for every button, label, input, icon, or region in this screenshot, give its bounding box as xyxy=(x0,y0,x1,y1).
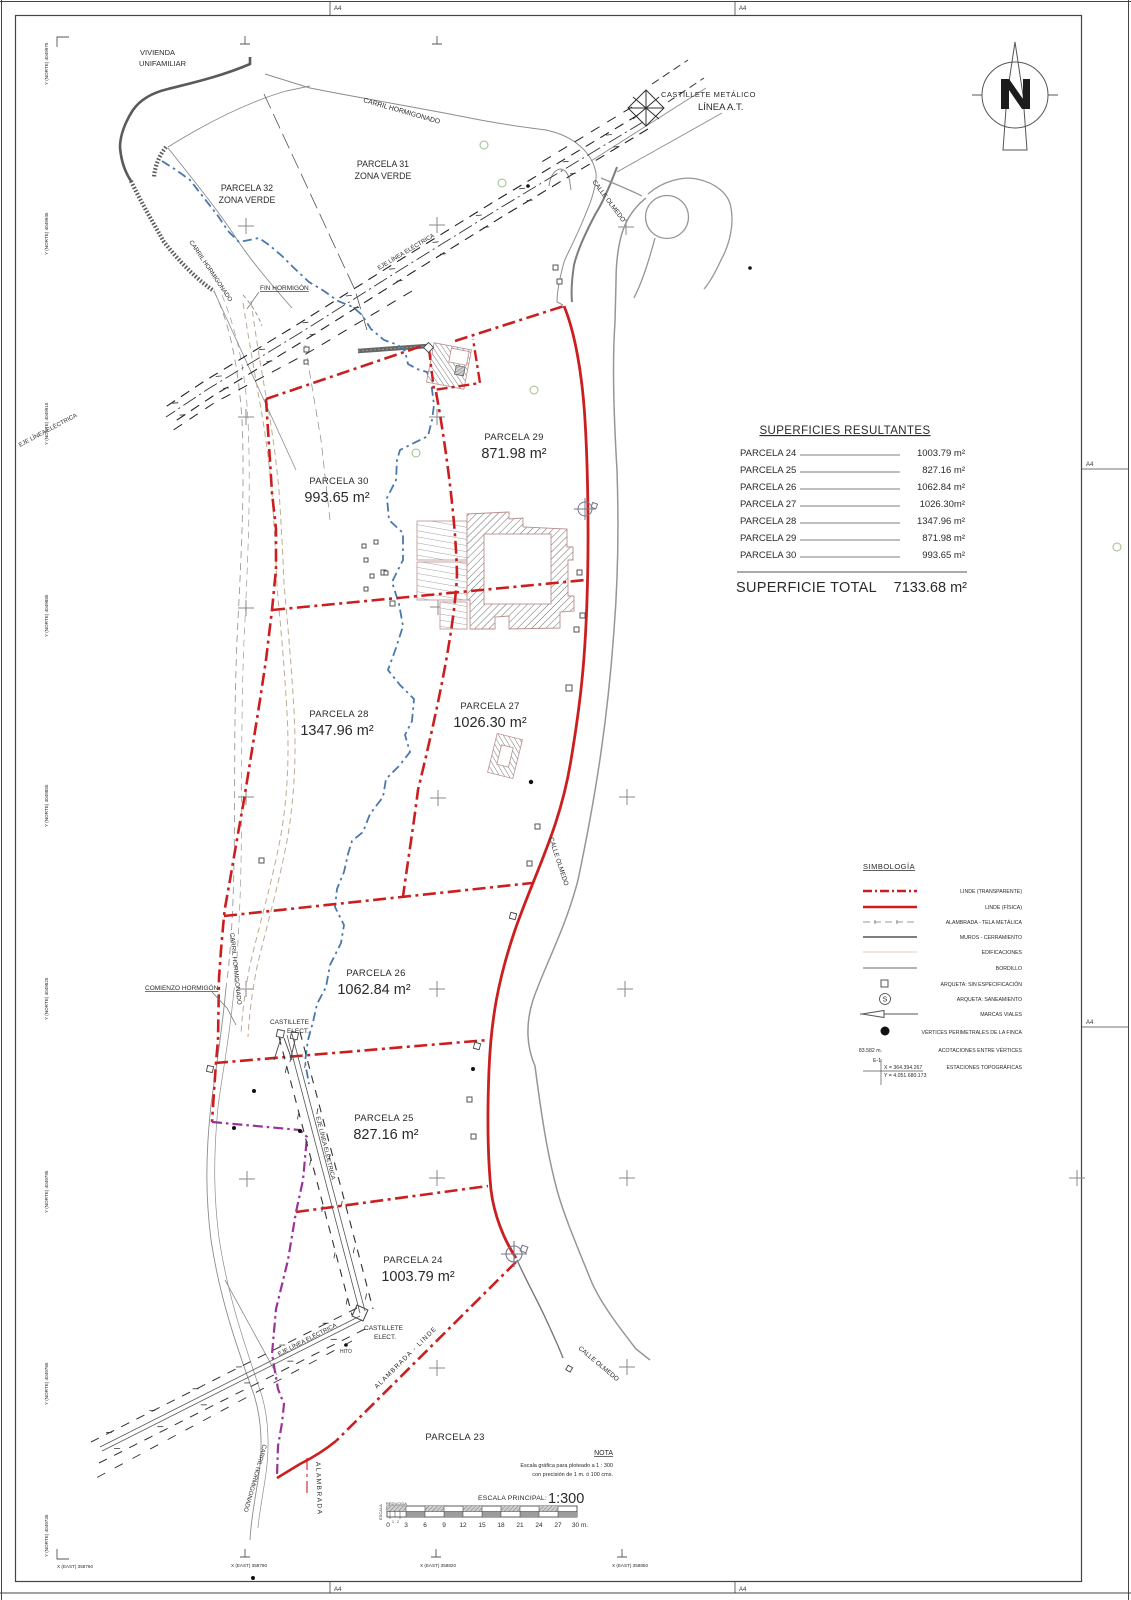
svg-text:7133.68 m²: 7133.68 m² xyxy=(894,580,968,596)
svg-text:REDUCIDA: REDUCIDA xyxy=(386,1501,407,1506)
svg-text:ELECT.: ELECT. xyxy=(374,1334,396,1341)
svg-text:ARQUETA: SANEAMIENTO: ARQUETA: SANEAMIENTO xyxy=(957,997,1022,1003)
svg-text:ESCALA: ESCALA xyxy=(378,1504,383,1520)
svg-text:21: 21 xyxy=(516,1522,524,1529)
svg-text:PARCELA 25: PARCELA 25 xyxy=(740,465,796,476)
svg-text:871.98 m²: 871.98 m² xyxy=(922,533,965,544)
svg-text:A4: A4 xyxy=(334,1587,342,1593)
svg-text:X = 364.394.267: X = 364.394.267 xyxy=(884,1065,922,1071)
svg-text:827.16 m²: 827.16 m² xyxy=(353,1127,418,1143)
svg-text:con precisión de 1 m. ó 100 cm: con precisión de 1 m. ó 100 cms. xyxy=(532,1472,613,1478)
svg-text:SUPERFICIES RESULTANTES: SUPERFICIES RESULTANTES xyxy=(759,425,930,437)
svg-text:1026.30 m²: 1026.30 m² xyxy=(453,715,527,731)
svg-text:PARCELA 28: PARCELA 28 xyxy=(309,709,368,720)
svg-text:HITO: HITO xyxy=(340,1349,352,1355)
svg-text:12: 12 xyxy=(459,1522,467,1529)
svg-text:PARCELA 29: PARCELA 29 xyxy=(484,432,543,443)
svg-text:Y (NORTE) 4049885: Y (NORTE) 4049885 xyxy=(44,594,49,637)
svg-text:A4: A4 xyxy=(739,6,747,12)
svg-text:1347.96 m²: 1347.96 m² xyxy=(300,723,374,739)
svg-text:1062.84 m²: 1062.84 m² xyxy=(337,982,411,998)
svg-text:827.16 m²: 827.16 m² xyxy=(922,465,965,476)
svg-text:ESCALA PRINCIPAL:: ESCALA PRINCIPAL: xyxy=(478,1495,547,1502)
svg-text:X (EAST) 358850: X (EAST) 358850 xyxy=(612,1563,648,1568)
svg-text:SIMBOLOGÍA: SIMBOLOGÍA xyxy=(863,862,915,871)
svg-text:X (EAST) 358820: X (EAST) 358820 xyxy=(420,1563,456,1568)
svg-text:1062.84 m²: 1062.84 m² xyxy=(917,482,965,493)
svg-text:FIN HORMIGÓN: FIN HORMIGÓN xyxy=(260,283,309,292)
svg-text:PARCELA 27: PARCELA 27 xyxy=(460,701,519,712)
svg-text:A4: A4 xyxy=(739,1587,747,1593)
svg-text:A4: A4 xyxy=(1086,1020,1094,1026)
svg-text:Y (NORTE) 4049855: Y (NORTE) 4049855 xyxy=(44,784,49,827)
svg-text:1026.30m²: 1026.30m² xyxy=(920,499,965,510)
svg-text:1003.79 m²: 1003.79 m² xyxy=(917,448,965,459)
svg-text:Y (NORTE) 4049825: Y (NORTE) 4049825 xyxy=(44,977,49,1020)
svg-text:1003.79 m²: 1003.79 m² xyxy=(381,1269,455,1285)
svg-text:ZONA VERDE: ZONA VERDE xyxy=(219,195,276,205)
svg-text:ARQUETA: SIN ESPECIFICACIÓN: ARQUETA: SIN ESPECIFICACIÓN xyxy=(941,981,1023,988)
svg-text:PARCELA 30: PARCELA 30 xyxy=(309,476,368,487)
svg-text:30 m.: 30 m. xyxy=(572,1522,588,1529)
svg-text:PARCELA 29: PARCELA 29 xyxy=(740,533,796,544)
svg-text:Escala gráfica para ploteado a: Escala gráfica para ploteado a 1 : 300 xyxy=(520,1463,613,1469)
svg-text:PARCELA 30: PARCELA 30 xyxy=(740,550,796,561)
svg-text:Y (NORTE) 4049975: Y (NORTE) 4049975 xyxy=(44,42,49,85)
svg-text:PARCELA 26: PARCELA 26 xyxy=(346,968,405,979)
svg-text:24: 24 xyxy=(535,1522,543,1529)
svg-text:ACOTACIONES ENTRE VÉRTICES: ACOTACIONES ENTRE VÉRTICES xyxy=(938,1047,1022,1054)
svg-text:ZONA VERDE: ZONA VERDE xyxy=(355,171,412,181)
svg-text:MUROS - CERRAMIENTO: MUROS - CERRAMIENTO xyxy=(960,935,1022,941)
svg-text:Y (NORTE) 4049945: Y (NORTE) 4049945 xyxy=(44,212,49,255)
svg-text:993.65 m²: 993.65 m² xyxy=(304,490,369,506)
svg-text:S: S xyxy=(883,997,888,1004)
svg-text:ELECT.: ELECT. xyxy=(287,1028,309,1035)
svg-text:A4: A4 xyxy=(1086,462,1094,468)
svg-text:VÉRTICES PERIMETRALES DE LA FI: VÉRTICES PERIMETRALES DE LA FINCA xyxy=(921,1029,1022,1036)
svg-text:3: 3 xyxy=(404,1522,408,1529)
svg-text:PARCELA 31: PARCELA 31 xyxy=(357,159,409,169)
svg-text:BORDILLO: BORDILLO xyxy=(996,966,1022,972)
svg-text:LINDE (FÍSICA): LINDE (FÍSICA) xyxy=(985,904,1022,911)
svg-text:MARCAS VIALES: MARCAS VIALES xyxy=(980,1012,1022,1018)
svg-text:X (EAST) 358790: X (EAST) 358790 xyxy=(231,1563,267,1568)
svg-text:PARCELA 25: PARCELA 25 xyxy=(354,1113,413,1124)
svg-text:VIVIENDA: VIVIENDA xyxy=(140,48,175,57)
svg-text:PARCELA 28: PARCELA 28 xyxy=(740,516,796,527)
svg-text:PARCELA 32: PARCELA 32 xyxy=(221,183,273,193)
svg-text:COMIENZO HORMIGÓN: COMIENZO HORMIGÓN xyxy=(145,983,219,992)
svg-text:UNIFAMILIAR: UNIFAMILIAR xyxy=(139,59,187,68)
svg-text:CASTILLETE: CASTILLETE xyxy=(364,1325,404,1332)
svg-text:Y (NORTE) 4049735: Y (NORTE) 4049735 xyxy=(44,1514,49,1557)
svg-text:993.65 m²: 993.65 m² xyxy=(922,550,965,561)
svg-text:A4: A4 xyxy=(334,6,342,12)
svg-text:2: 2 xyxy=(397,1520,399,1524)
svg-text:Y (NORTE) 4049915: Y (NORTE) 4049915 xyxy=(44,402,49,445)
svg-text:EDIFICACIONES: EDIFICACIONES xyxy=(982,950,1023,956)
svg-text:1347.96 m²: 1347.96 m² xyxy=(917,516,965,527)
svg-text:Y = 4.051.680.173: Y = 4.051.680.173 xyxy=(884,1073,927,1079)
svg-text:6: 6 xyxy=(423,1522,427,1529)
svg-text:83.582 m.: 83.582 m. xyxy=(859,1048,882,1054)
svg-text:Y (NORTE) 4049795: Y (NORTE) 4049795 xyxy=(44,1170,49,1213)
svg-text:CASTILLETE: CASTILLETE xyxy=(270,1019,310,1026)
svg-text:PARCELA 27: PARCELA 27 xyxy=(740,499,796,510)
svg-text:9: 9 xyxy=(442,1522,446,1529)
svg-text:LINDE (TRANSPARENTE): LINDE (TRANSPARENTE) xyxy=(960,889,1022,895)
svg-text:X (EAST) 358760: X (EAST) 358760 xyxy=(57,1564,93,1569)
svg-text:NOTA: NOTA xyxy=(594,1450,613,1457)
svg-text:LÍNEA A.T.: LÍNEA A.T. xyxy=(698,102,743,113)
svg-text:15: 15 xyxy=(478,1522,486,1529)
svg-text:871.98 m²: 871.98 m² xyxy=(481,446,546,462)
svg-text:Y (NORTE) 4049765: Y (NORTE) 4049765 xyxy=(44,1362,49,1405)
svg-text:1: 1 xyxy=(392,1520,394,1524)
svg-text:ESTACIONES TOPOGRÁFICAS: ESTACIONES TOPOGRÁFICAS xyxy=(946,1064,1022,1071)
svg-text:1:300: 1:300 xyxy=(548,1491,584,1507)
svg-text:27: 27 xyxy=(554,1522,562,1529)
svg-text:E-1: E-1 xyxy=(873,1058,881,1064)
svg-text:PARCELA 24: PARCELA 24 xyxy=(740,448,796,459)
svg-text:0: 0 xyxy=(386,1522,390,1529)
svg-text:18: 18 xyxy=(497,1522,505,1529)
svg-text:PARCELA 24: PARCELA 24 xyxy=(383,1255,442,1266)
svg-text:SUPERFICIE TOTAL: SUPERFICIE TOTAL xyxy=(736,580,877,596)
svg-text:PARCELA 23: PARCELA 23 xyxy=(425,1432,484,1443)
svg-text:ALAMBRADA - TELA METÁLICA: ALAMBRADA - TELA METÁLICA xyxy=(946,919,1023,926)
svg-text:CASTILLETE METÁLICO: CASTILLETE METÁLICO xyxy=(661,90,756,99)
svg-text:PARCELA 26: PARCELA 26 xyxy=(740,482,796,493)
